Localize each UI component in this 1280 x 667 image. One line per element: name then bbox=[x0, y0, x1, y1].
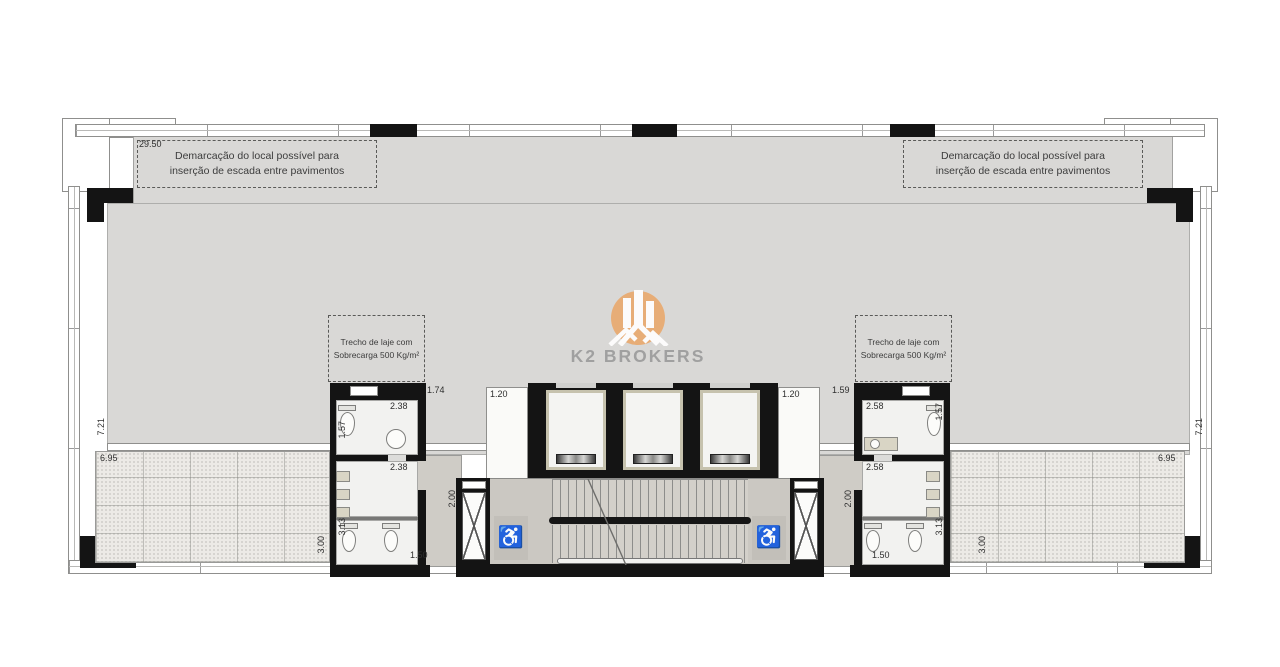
slab-overload-zone-left: Trecho de laje com Sobrecarga 500 Kg/m² bbox=[328, 315, 425, 382]
dim-label: 1.50 bbox=[872, 550, 890, 560]
dim-label: 1.57 bbox=[337, 421, 347, 439]
lavatory-1 bbox=[336, 471, 350, 482]
toilet-tank bbox=[338, 405, 356, 411]
restroom-core-left: 2.38 1.57 2.38 3.13 1.74 bbox=[330, 383, 430, 577]
stair-note-right-line1: Demarcação do local possível para bbox=[941, 150, 1105, 162]
slab-note-right-line2: Sobrecarga 500 Kg/m² bbox=[861, 350, 947, 360]
k2-brokers-logo-text: K2 BROKERS bbox=[548, 346, 728, 367]
dim-label: 2.58 bbox=[866, 462, 884, 472]
elevator-door-1 bbox=[556, 454, 596, 464]
elevator-lobby-left bbox=[486, 387, 528, 479]
dim-terrace-right: 6.95 bbox=[1158, 453, 1176, 463]
dim-depth-right: 7.21 bbox=[1194, 418, 1204, 436]
dim-depth-left: 7.21 bbox=[96, 418, 106, 436]
slab-note-right-line1: Trecho de laje com bbox=[868, 337, 940, 347]
window-wall-right bbox=[1200, 186, 1212, 570]
elevator-door-2 bbox=[633, 454, 673, 464]
dim-terrace-left: 6.95 bbox=[100, 453, 118, 463]
elevator-door-recess-3 bbox=[710, 383, 750, 388]
elevator-door-recess-2 bbox=[633, 383, 673, 388]
toilet-tank-a bbox=[864, 523, 882, 529]
dim-lobby-left: 1.20 bbox=[490, 389, 508, 399]
toilet-tank-b bbox=[382, 523, 400, 529]
lavatory-3 bbox=[926, 507, 940, 518]
terrace-left bbox=[95, 451, 330, 563]
wall-top bbox=[330, 383, 426, 400]
pillar-corner-tl-v bbox=[87, 188, 104, 222]
shaft-slot-right bbox=[794, 481, 818, 489]
dim-label: 3.13 bbox=[934, 518, 944, 536]
stair-note-left-line2: inserção de escada entre pavimentos bbox=[170, 165, 345, 177]
elevator-door-3 bbox=[710, 454, 750, 464]
k2-brokers-logo-icon bbox=[598, 284, 678, 346]
elevator-bank bbox=[528, 383, 778, 480]
stair-break-line bbox=[552, 479, 748, 565]
dim-label: 2.58 bbox=[866, 401, 884, 411]
slab-overload-zone-right: Trecho de laje com Sobrecarga 500 Kg/m² bbox=[855, 315, 952, 382]
pillar-top-3 bbox=[890, 124, 935, 137]
stair-hall-bottom-wall bbox=[456, 564, 824, 577]
dim-label: 2.00 bbox=[447, 490, 457, 508]
wall-bottom bbox=[850, 565, 950, 577]
elevator-cab-3 bbox=[700, 390, 760, 470]
elevator-cab-2 bbox=[623, 390, 683, 470]
dim-label: 3.00 bbox=[316, 536, 326, 554]
stair-note-left-line1: Demarcação do local possível para bbox=[175, 150, 339, 162]
wall-left-lower bbox=[854, 490, 862, 577]
lavatory-2 bbox=[926, 489, 940, 500]
round-basin bbox=[386, 429, 406, 449]
accessible-area-right: ♿ bbox=[752, 516, 786, 560]
toilet-tank-b bbox=[906, 523, 924, 529]
pillar-top-1 bbox=[370, 124, 417, 137]
watermark: K2 BROKERS bbox=[548, 284, 728, 368]
staircase bbox=[552, 479, 748, 565]
wall-right-upper bbox=[418, 383, 426, 461]
dim-overall-width: 29.50 bbox=[139, 139, 162, 149]
duct-shaft-right bbox=[794, 492, 818, 560]
wall-bottom bbox=[330, 565, 430, 577]
dim-lobby-right: 1.20 bbox=[782, 389, 800, 399]
wheelchair-icon: ♿ bbox=[498, 526, 524, 550]
stair-note-right-line2: inserção de escada entre pavimentos bbox=[936, 165, 1111, 177]
slab-note-left-line2: Sobrecarga 500 Kg/m² bbox=[334, 350, 420, 360]
dim-label: 3.00 bbox=[977, 536, 987, 554]
dim-label: 2.38 bbox=[390, 401, 408, 411]
shaft-slot-left bbox=[462, 481, 486, 489]
dim-label: 2.00 bbox=[843, 490, 853, 508]
wall-niche bbox=[350, 386, 378, 396]
dim-label: 1.74 bbox=[427, 385, 445, 395]
dim-label: 1.57 bbox=[934, 403, 944, 421]
dim-label: 3.13 bbox=[337, 518, 347, 536]
stair-demarcation-zone-left: Demarcação do local possível para inserç… bbox=[137, 140, 377, 188]
wheelchair-icon: ♿ bbox=[756, 526, 782, 550]
window-wall-left bbox=[68, 186, 80, 570]
restroom-core-right: 2.58 1.57 2.58 3.13 1.59 bbox=[850, 383, 950, 577]
lavatory-1 bbox=[926, 471, 940, 482]
lavatory-2 bbox=[336, 489, 350, 500]
elevator-cab-1 bbox=[546, 390, 606, 470]
floor-plan: Demarcação do local possível para inserç… bbox=[0, 0, 1280, 667]
dim-label: 1.59 bbox=[832, 385, 850, 395]
elevator-lobby-right bbox=[778, 387, 820, 479]
lavatory-3 bbox=[336, 507, 350, 518]
dim-label: 1.50 bbox=[410, 550, 428, 560]
wall-right-lower bbox=[418, 490, 426, 577]
wall-right bbox=[944, 383, 950, 565]
counter-sink bbox=[870, 439, 880, 449]
elevator-door-recess-1 bbox=[556, 383, 596, 388]
duct-shaft-left bbox=[462, 492, 486, 560]
stair-demarcation-zone-right: Demarcação do local possível para inserç… bbox=[903, 140, 1143, 188]
pillar-top-2 bbox=[632, 124, 677, 137]
pillar-corner-tr-v bbox=[1176, 188, 1193, 222]
slab-note-left-line1: Trecho de laje com bbox=[341, 337, 413, 347]
dim-label: 2.38 bbox=[390, 462, 408, 472]
wall-left-upper bbox=[854, 383, 862, 461]
accessible-area-left: ♿ bbox=[494, 516, 528, 560]
wall-niche bbox=[902, 386, 930, 396]
